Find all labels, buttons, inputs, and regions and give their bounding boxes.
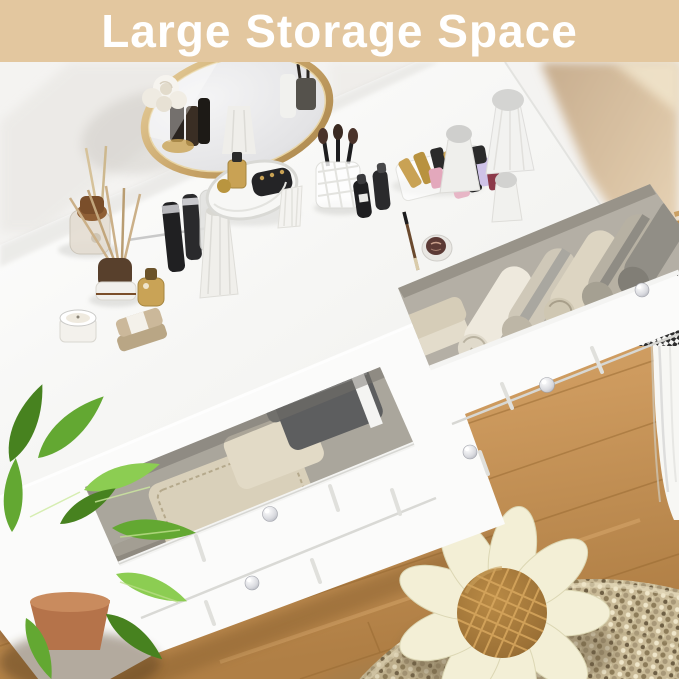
crystal-knob xyxy=(463,445,477,459)
white-candle xyxy=(60,310,96,342)
crystal-knob xyxy=(263,507,278,522)
product-image: Large Storage Space xyxy=(0,0,679,679)
crystal-knob xyxy=(245,576,259,590)
makeup-brush-holder xyxy=(316,124,360,208)
pleated-decor xyxy=(278,186,302,228)
banner: Large Storage Space xyxy=(0,0,679,62)
crystal-knob xyxy=(540,378,555,393)
scene-photo xyxy=(0,62,679,679)
banner-title: Large Storage Space xyxy=(101,8,578,54)
crystal-knob xyxy=(635,283,649,297)
compact-bronzer xyxy=(422,235,452,261)
